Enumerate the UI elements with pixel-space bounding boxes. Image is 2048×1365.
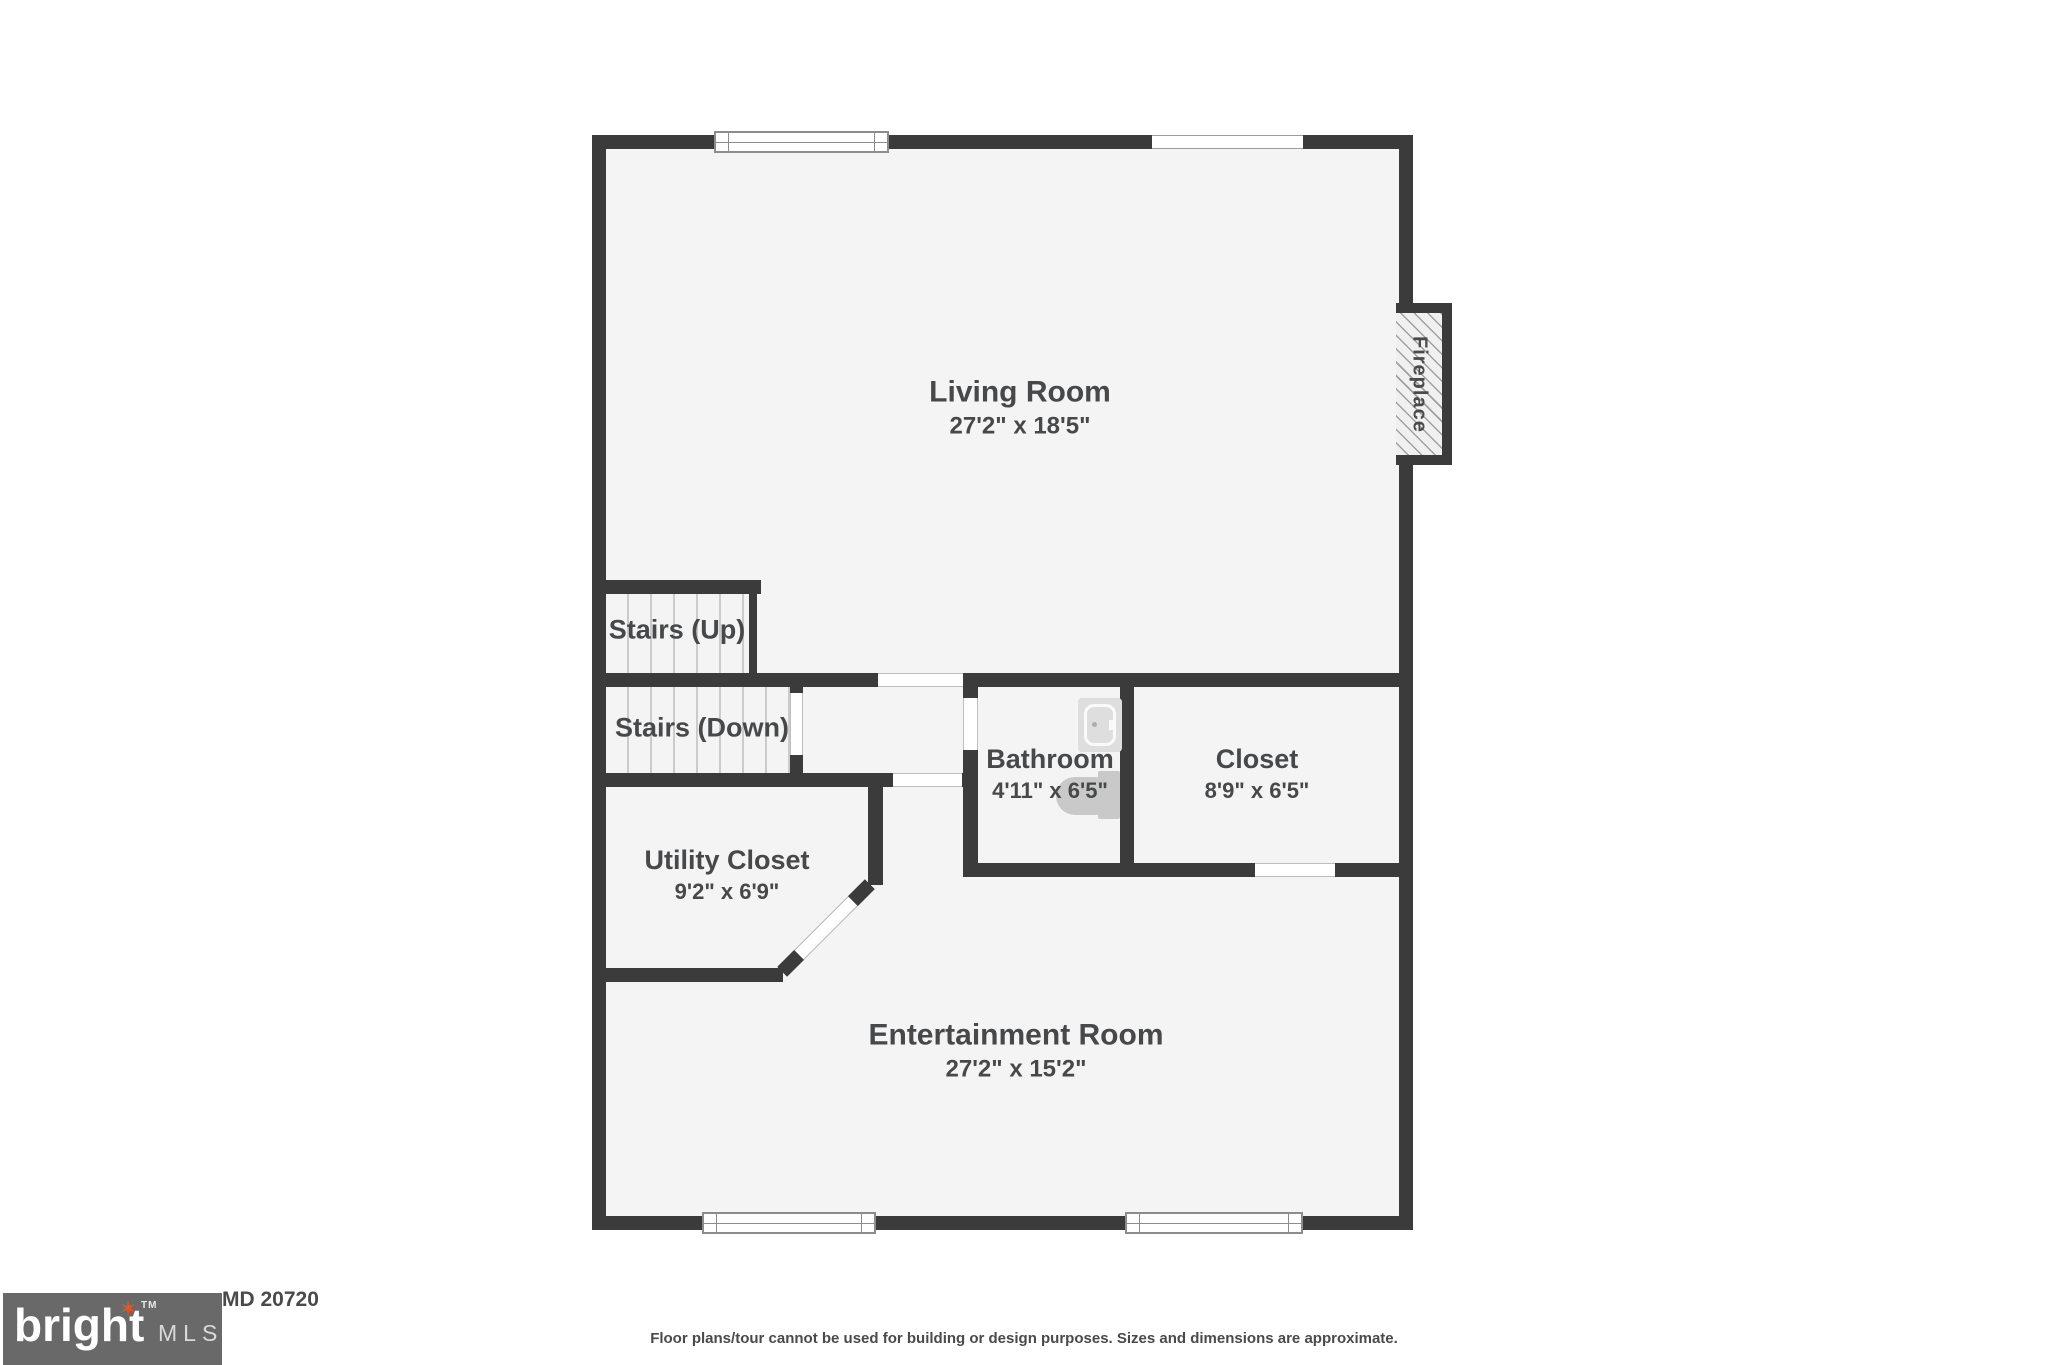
fireplace: Fireplace — [1396, 303, 1452, 465]
window-bottom-right — [1125, 1212, 1303, 1234]
entertainment-room-dims: 27'2" x 15'2" — [868, 1056, 1163, 1084]
closet-dims: 8'9" x 6'5" — [1205, 778, 1310, 804]
wall-right-upper — [1399, 135, 1413, 303]
window-top-right — [1152, 135, 1303, 149]
wall-right-lower — [1399, 465, 1413, 1230]
window-bottom-left — [702, 1212, 876, 1234]
wall-stairs-up-right — [749, 580, 757, 687]
entertainment-room-name: Entertainment Room — [868, 1019, 1163, 1053]
wall-bath-closet-bottom-right — [1335, 863, 1413, 877]
window-end-cap — [716, 1214, 717, 1232]
wall-utility-top — [592, 773, 893, 787]
window-end-cap — [861, 1214, 862, 1232]
utility-closet-name: Utility Closet — [644, 845, 809, 876]
wall-bathroom-left-upper — [963, 673, 978, 698]
opening-hallway-to-entertainment — [893, 773, 962, 787]
window-end-cap — [1288, 1214, 1289, 1232]
window-end-cap — [1139, 1214, 1140, 1232]
room-label-bathroom: Bathroom 4'11" x 6'5" — [986, 744, 1114, 804]
bathroom-name: Bathroom — [986, 744, 1114, 775]
room-label-stairs-up: Stairs (Up) — [609, 615, 746, 646]
living-room-name: Living Room — [929, 376, 1111, 410]
window-top-left — [714, 131, 889, 153]
wall-stairs-up-top — [592, 580, 761, 594]
opening-stairs-down-door — [790, 693, 803, 755]
window-pane-line — [1127, 1223, 1301, 1224]
wall-bath-closet-top — [963, 673, 1413, 687]
wall-bath-closet-divider — [1120, 673, 1134, 877]
room-label-entertainment: Entertainment Room 27'2" x 15'2" — [868, 1019, 1163, 1084]
opening-closet-door — [1255, 863, 1335, 877]
utility-closet-dims: 9'2" x 6'9" — [644, 879, 809, 905]
listing-address-partial: MD 20720 — [222, 1288, 319, 1312]
room-label-stairs-down: Stairs (Down) — [615, 713, 789, 744]
living-room-dims: 27'2" x 18'5" — [929, 413, 1111, 441]
wall-stairs-down-right-stub-bottom — [790, 755, 803, 787]
window-end-cap — [874, 133, 875, 151]
room-label-closet: Closet 8'9" x 6'5" — [1205, 744, 1310, 804]
opening-bathroom-door — [963, 698, 978, 750]
fireplace-label: Fireplace — [1408, 336, 1431, 433]
wall-stairs-divider — [592, 673, 878, 687]
window-pane-line — [704, 1223, 874, 1224]
closet-name: Closet — [1205, 744, 1310, 775]
disclaimer-text: Floor plans/tour cannot be used for buil… — [0, 1330, 2048, 1347]
floor-plan-page: Fireplace Living Room 27'2" x 18'5" Stai… — [0, 0, 2048, 1365]
opening-living-to-hallway — [878, 673, 963, 687]
room-label-utility: Utility Closet 9'2" x 6'9" — [644, 845, 809, 905]
window-pane-line — [716, 142, 887, 143]
sink-drain — [1092, 722, 1097, 727]
sparkle-icon: ✶ — [119, 1296, 137, 1322]
wall-utility-bottom — [592, 968, 783, 982]
room-label-living: Living Room 27'2" x 18'5" — [929, 376, 1111, 441]
wall-bathroom-left-lower — [963, 750, 978, 877]
wall-bath-closet-bottom-left — [963, 863, 1255, 877]
sink-faucet — [1109, 720, 1116, 730]
bathroom-dims: 4'11" x 6'5" — [986, 778, 1114, 804]
wall-utility-right — [868, 773, 883, 885]
window-end-cap — [728, 133, 729, 151]
trademark-symbol: TM — [141, 1300, 157, 1311]
